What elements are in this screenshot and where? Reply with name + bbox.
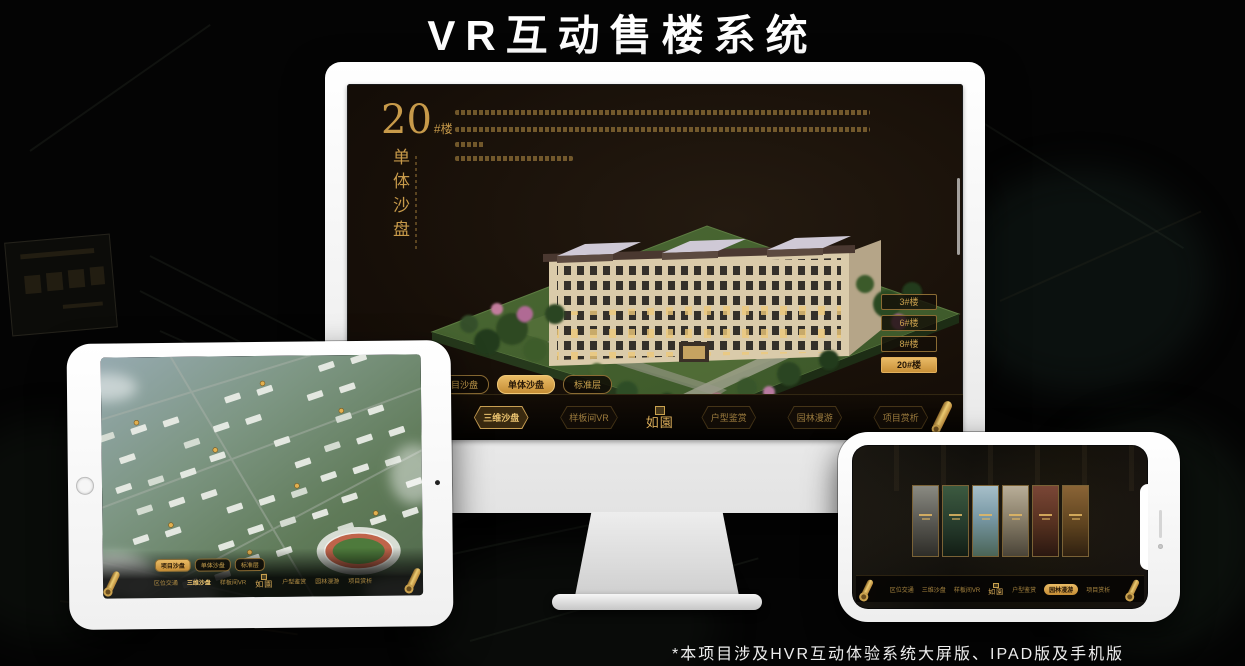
camera-dot-icon [435, 480, 440, 485]
tablet-device: 项目沙盘 单体沙盘 标准层 区位交通 三维沙盘 样板间VR 如園 户型鉴赏 园林… [67, 340, 454, 630]
tablet-screen: 项目沙盘 单体沙盘 标准层 区位交通 三维沙盘 样板间VR 如園 户型鉴赏 园林… [101, 354, 424, 598]
gallery-panels [912, 485, 1089, 557]
floor-button-3[interactable]: 3#楼 [881, 294, 937, 310]
background-plaque [4, 234, 118, 337]
nav-3d-sandbox[interactable]: 三维沙盘 [470, 406, 532, 429]
screen-scrollbar[interactable] [957, 178, 960, 255]
logo-seal-icon [993, 583, 999, 588]
description-text-line [455, 110, 870, 115]
phone-nav-bar: 区位交通 三维沙盘 样板间VR 如園 户型鉴赏 园林漫游 项目赏析 [856, 575, 1144, 602]
nav-project-appreciation[interactable]: 项目赏析 [870, 406, 932, 429]
gallery-panel[interactable] [912, 485, 939, 557]
floor-button-20[interactable]: 20#楼 [881, 357, 937, 373]
nav-garden-tour[interactable]: 园林漫游 [315, 576, 339, 585]
floor-button-6[interactable]: 6#楼 [881, 315, 937, 331]
nav-garden-tour[interactable]: 园林漫游 [784, 406, 846, 429]
gallery-panel[interactable] [972, 485, 999, 557]
description-text-line [455, 156, 573, 161]
tablet-nav-bar: 区位交通 三维沙盘 样板间VR 如園 户型鉴赏 园林漫游 项目赏析 [109, 567, 417, 594]
nav-3d-sandbox[interactable]: 三维沙盘 [187, 577, 211, 586]
sandbox-tabs: 项目沙盘 单体沙盘 标准层 [431, 375, 612, 394]
brand-logo: 如園 [255, 573, 273, 588]
scroll-icon[interactable] [931, 400, 953, 433]
floor-suffix: #楼 [434, 122, 453, 136]
background-foliage [950, 170, 1210, 390]
nav-model-room-vr[interactable]: 样板间VR [556, 406, 622, 429]
description-text-line [455, 127, 870, 132]
monitor-stand-neck [575, 512, 739, 596]
floor-button-group: 3#楼 6#楼 8#楼 20#楼 [881, 294, 941, 378]
gallery-panel[interactable] [1062, 485, 1089, 557]
tab-standard-floor[interactable]: 标准层 [563, 375, 612, 394]
poster: VR互动售楼系统 20#楼 单体沙盘 [0, 0, 1245, 666]
tab-single-building[interactable]: 单体沙盘 [497, 375, 555, 394]
page-title: VR互动售楼系统 [0, 2, 1245, 63]
notch [1140, 484, 1148, 570]
nav-3d-sandbox[interactable]: 三维沙盘 [922, 585, 946, 594]
nav-floorplan-gallery[interactable]: 户型鉴赏 [1012, 585, 1036, 594]
logo-text: 如園 [988, 589, 1004, 596]
nav-garden-tour[interactable]: 园林漫游 [1044, 584, 1078, 595]
logo-seal-icon [655, 406, 665, 415]
camera-dot-icon [1158, 544, 1163, 549]
home-button-icon [76, 477, 94, 495]
logo-text: 如園 [255, 580, 273, 588]
description-text-line [455, 142, 485, 147]
nav-project-appreciation[interactable]: 项目赏析 [1086, 585, 1110, 594]
brand-logo: 如園 [646, 406, 674, 430]
scroll-icon[interactable] [1126, 579, 1140, 600]
nav-model-room-vr[interactable]: 样板间VR [954, 585, 980, 594]
monitor-stand-base [552, 594, 762, 610]
floor-button-8[interactable]: 8#楼 [881, 336, 937, 352]
nav-location-traffic[interactable]: 区位交通 [890, 585, 914, 594]
nav-location-traffic[interactable]: 区位交通 [154, 577, 178, 586]
logo-seal-icon [261, 573, 267, 579]
nav-model-room-vr[interactable]: 样板间VR [220, 577, 246, 586]
gallery-panel[interactable] [942, 485, 969, 557]
phone-device: 区位交通 三维沙盘 样板间VR 如園 户型鉴赏 园林漫游 项目赏析 [838, 432, 1180, 622]
scroll-icon[interactable] [860, 579, 874, 600]
floor-subtitle: 单体沙盘 [387, 148, 412, 244]
nav-floorplan-gallery[interactable]: 户型鉴赏 [698, 406, 760, 429]
gallery-panel[interactable] [1032, 485, 1059, 557]
logo-text: 如園 [646, 417, 674, 430]
brand-logo: 如園 [988, 583, 1004, 596]
nav-floorplan-gallery[interactable]: 户型鉴赏 [282, 576, 306, 585]
footnote: *本项目涉及HVR互动体验系统大屏版、IPAD版及手机版 [672, 640, 1124, 664]
phone-screen: 区位交通 三维沙盘 样板间VR 如園 户型鉴赏 园林漫游 项目赏析 [852, 445, 1148, 609]
nav-project-appreciation[interactable]: 项目赏析 [348, 575, 372, 584]
speaker-slit-icon [1159, 510, 1162, 538]
gallery-panel[interactable] [1002, 485, 1029, 557]
floor-number: 20 [381, 97, 432, 143]
